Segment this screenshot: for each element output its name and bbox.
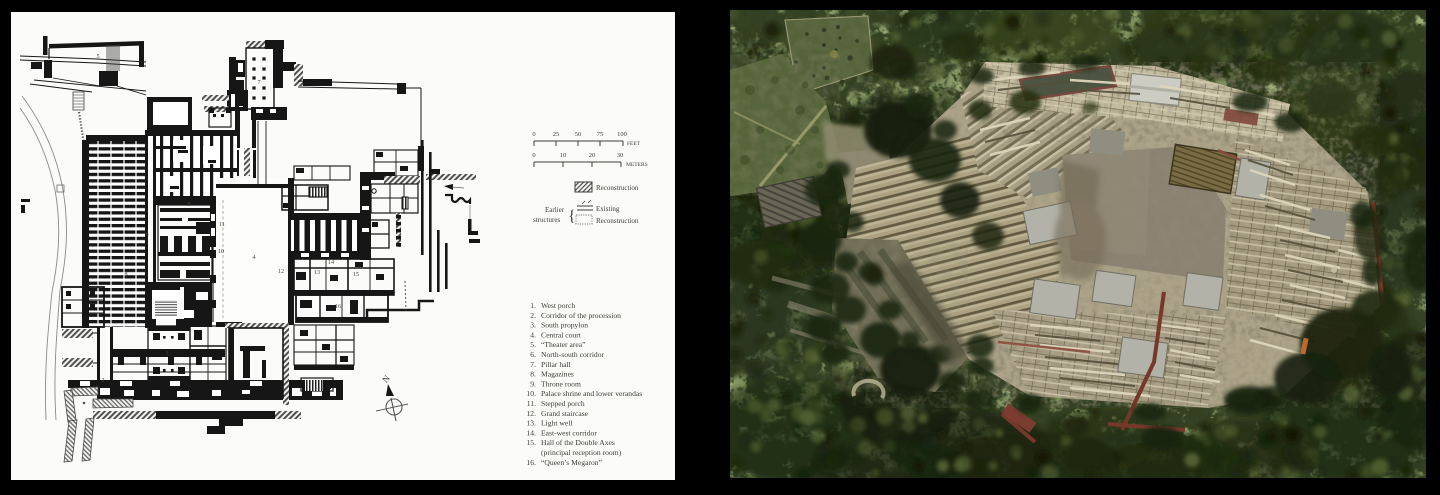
svg-text:1.: 1. <box>530 301 536 310</box>
svg-text:75: 75 <box>597 131 604 138</box>
svg-text:5.: 5. <box>530 340 536 349</box>
svg-text:Existing: Existing <box>596 205 620 213</box>
svg-text:Central court: Central court <box>541 330 582 339</box>
svg-text:8: 8 <box>124 271 127 278</box>
svg-text:25: 25 <box>553 131 560 138</box>
svg-text:South propylon: South propylon <box>541 321 588 330</box>
svg-text:13: 13 <box>314 269 320 276</box>
svg-text:Stepped porch: Stepped porch <box>541 399 585 408</box>
svg-text:6: 6 <box>145 231 148 238</box>
svg-text:10.: 10. <box>527 389 537 398</box>
svg-text:0: 0 <box>532 152 535 159</box>
svg-text:“Queen’s Megaron”: “Queen’s Megaron” <box>541 458 602 467</box>
svg-text:100: 100 <box>617 131 627 138</box>
svg-text:11.: 11. <box>527 399 536 408</box>
svg-text:Grand staircase: Grand staircase <box>541 409 589 418</box>
svg-text:20: 20 <box>589 152 596 159</box>
svg-text:15: 15 <box>353 271 359 278</box>
svg-text:Palace shrine and lower verand: Palace shrine and lower verandas <box>541 389 642 398</box>
svg-text:9.: 9. <box>530 379 536 388</box>
svg-text:2: 2 <box>101 377 104 384</box>
svg-text:50: 50 <box>575 131 582 138</box>
svg-text:4: 4 <box>252 254 255 261</box>
svg-text:N: N <box>380 373 392 385</box>
svg-text:12: 12 <box>278 268 284 275</box>
svg-text:8.: 8. <box>530 370 536 379</box>
svg-text:Throne room: Throne room <box>541 379 581 388</box>
svg-text:14.: 14. <box>527 428 537 437</box>
svg-text:FEET: FEET <box>627 141 641 147</box>
svg-text:2.: 2. <box>530 311 536 320</box>
svg-text:7: 7 <box>257 79 260 86</box>
svg-text:7.: 7. <box>530 360 536 369</box>
svg-text:15.: 15. <box>527 438 537 447</box>
svg-text:(principal reception room): (principal reception room) <box>541 448 622 457</box>
svg-text:Hall of the Double Axes: Hall of the Double Axes <box>541 438 615 447</box>
svg-text:11: 11 <box>219 221 225 228</box>
svg-text:16.: 16. <box>527 458 537 467</box>
svg-text:4.: 4. <box>530 330 536 339</box>
svg-text:Pillar hall: Pillar hall <box>541 360 571 369</box>
svg-text:3.: 3. <box>530 321 536 330</box>
svg-text:{: { <box>568 208 576 225</box>
svg-text:Light well: Light well <box>541 419 572 428</box>
svg-text:structures: structures <box>533 216 560 224</box>
svg-text:16: 16 <box>335 303 341 310</box>
svg-text:0: 0 <box>532 131 535 138</box>
svg-text:5: 5 <box>96 53 99 60</box>
svg-text:West porch: West porch <box>541 301 575 310</box>
svg-text:“Theater area”: “Theater area” <box>541 340 585 349</box>
svg-text:Earlier: Earlier <box>545 206 565 214</box>
svg-text:9: 9 <box>187 201 190 208</box>
svg-text:14: 14 <box>328 259 334 266</box>
svg-text:3: 3 <box>165 350 168 357</box>
svg-text:Reconstruction: Reconstruction <box>596 217 639 225</box>
svg-text:Reconstruction: Reconstruction <box>596 184 639 192</box>
svg-text:6.: 6. <box>530 350 536 359</box>
svg-text:Magazines: Magazines <box>541 370 574 379</box>
svg-text:12.: 12. <box>527 409 537 418</box>
svg-text:13.: 13. <box>527 419 537 428</box>
svg-text:METERS: METERS <box>626 162 648 168</box>
svg-text:East-west corridor: East-west corridor <box>541 428 597 437</box>
svg-text:30: 30 <box>617 152 624 159</box>
svg-text:10: 10 <box>560 152 567 159</box>
svg-text:North-south corridor: North-south corridor <box>541 350 605 359</box>
svg-text:10: 10 <box>218 248 224 255</box>
svg-text:Corridor of the procession: Corridor of the procession <box>541 311 621 320</box>
